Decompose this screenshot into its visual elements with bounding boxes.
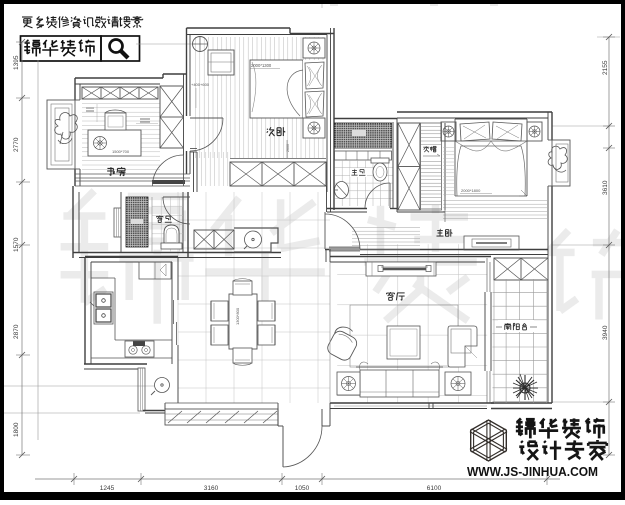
svg-text:1500*700: 1500*700	[112, 149, 130, 154]
svg-text:1395: 1395	[13, 55, 20, 70]
svg-text:2600: 2600	[286, 144, 290, 152]
svg-text:2000*1800: 2000*1800	[461, 188, 481, 193]
svg-text:+400+600: +400+600	[191, 82, 210, 87]
svg-text:2155: 2155	[602, 60, 609, 75]
svg-text:1300*800: 1300*800	[235, 307, 240, 325]
svg-text:6100: 6100	[427, 485, 442, 492]
svg-text:2770: 2770	[13, 137, 20, 152]
svg-text:3940: 3940	[602, 325, 609, 340]
svg-text:2000*1300: 2000*1300	[251, 63, 272, 68]
svg-text:1245: 1245	[100, 485, 115, 492]
svg-text:1800: 1800	[13, 422, 20, 437]
svg-text:1570: 1570	[13, 237, 20, 252]
svg-text:3160: 3160	[204, 485, 219, 492]
svg-text:1050: 1050	[295, 485, 310, 492]
svg-text:WWW.JS-JINHUA.COM: WWW.JS-JINHUA.COM	[467, 465, 598, 479]
svg-text:3610: 3610	[602, 180, 609, 195]
svg-text:2870: 2870	[13, 324, 20, 339]
